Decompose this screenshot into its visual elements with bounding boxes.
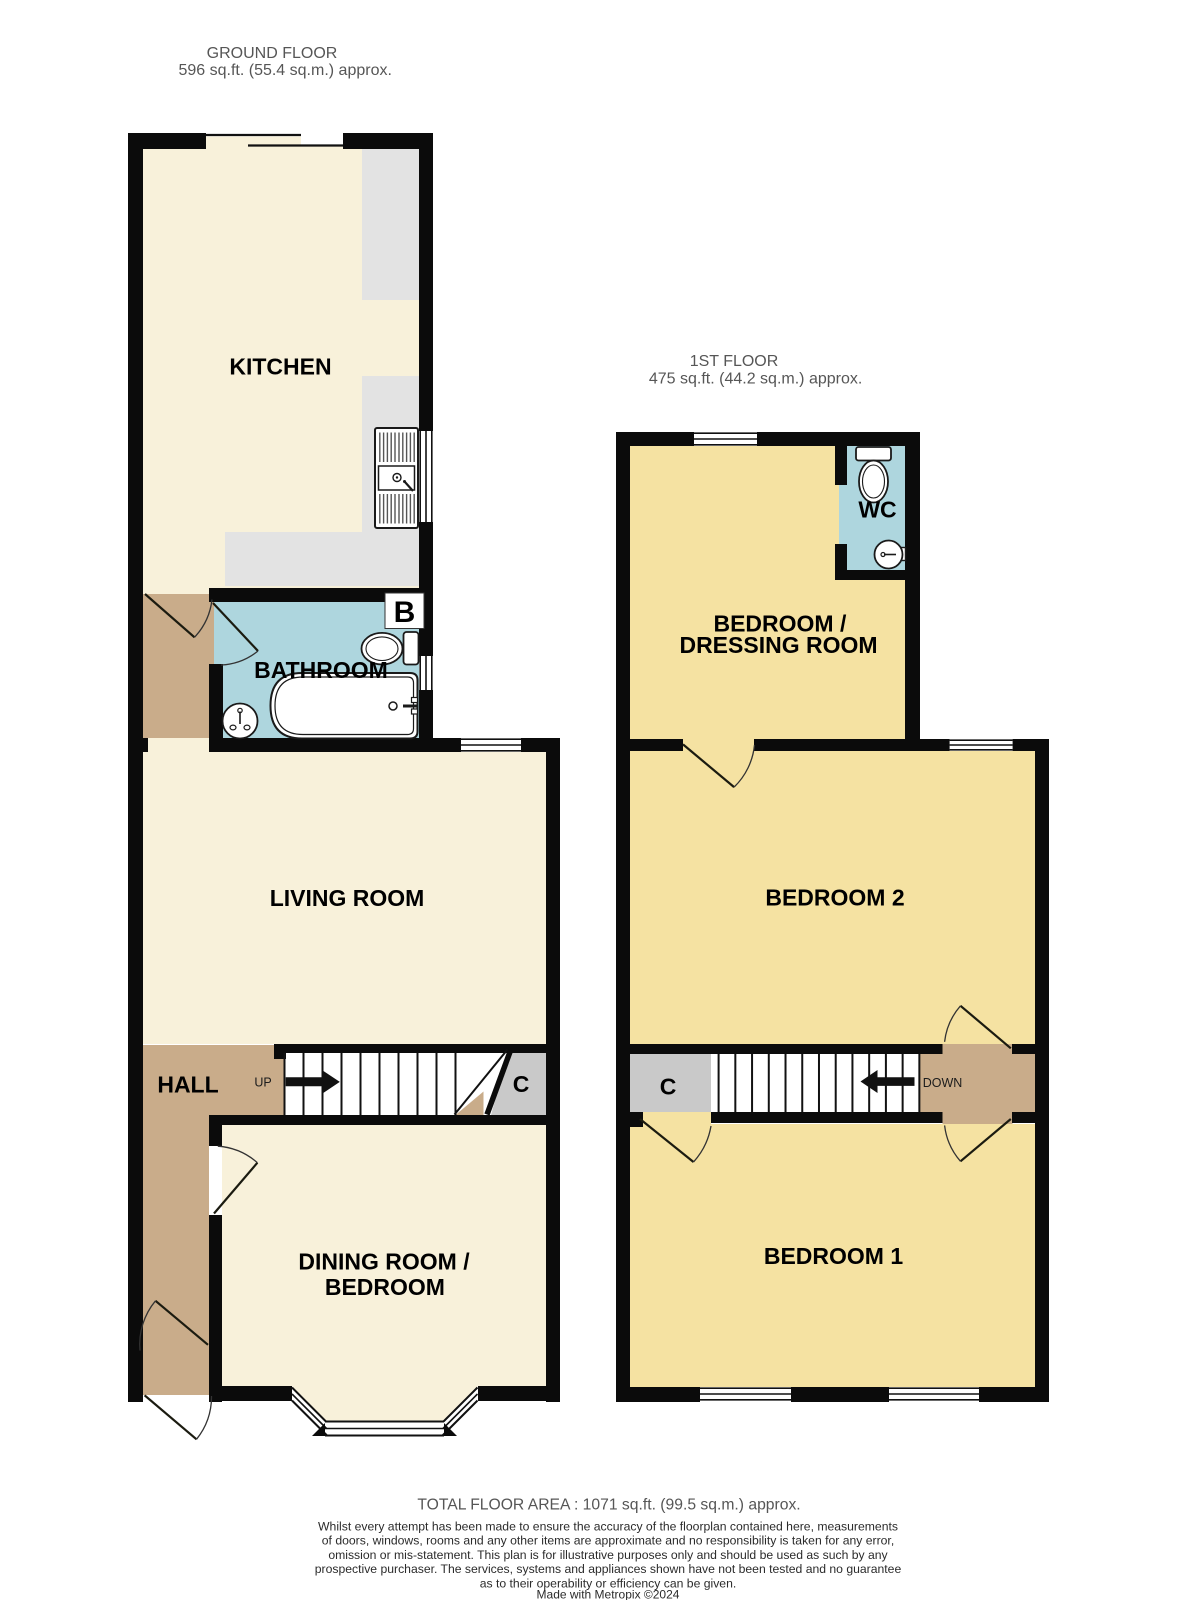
svg-text:DINING ROOM /: DINING ROOM /: [298, 1249, 470, 1275]
svg-text:TOTAL FLOOR AREA : 1071 sq.ft.: TOTAL FLOOR AREA : 1071 sq.ft. (99.5 sq.…: [417, 1497, 800, 1514]
svg-text:omission or mis-statement. Thi: omission or mis-statement. This plan is …: [328, 1548, 888, 1562]
svg-text:UP: UP: [254, 1075, 271, 1089]
svg-text:GROUND FLOOR: GROUND FLOOR: [207, 45, 338, 62]
svg-text:DOWN: DOWN: [923, 1076, 963, 1090]
svg-text:C: C: [513, 1071, 530, 1097]
svg-text:BEDROOM: BEDROOM: [325, 1274, 445, 1300]
svg-text:of doors, windows, rooms and a: of doors, windows, rooms and any other i…: [322, 1534, 894, 1548]
svg-text:B: B: [394, 596, 416, 629]
svg-text:BATHROOM: BATHROOM: [254, 657, 388, 683]
svg-text:C: C: [660, 1074, 677, 1100]
svg-text:LIVING ROOM: LIVING ROOM: [270, 885, 425, 911]
svg-text:BEDROOM 2: BEDROOM 2: [765, 885, 904, 911]
svg-text:Whilst every attempt has been: Whilst every attempt has been made to en…: [318, 1519, 898, 1533]
svg-text:475 sq.ft. (44.2 sq.m.) approx: 475 sq.ft. (44.2 sq.m.) approx.: [649, 371, 862, 388]
svg-text:1ST FLOOR: 1ST FLOOR: [690, 353, 779, 370]
svg-text:Made with Metropix ©2024: Made with Metropix ©2024: [537, 1587, 680, 1600]
svg-text:BEDROOM 1: BEDROOM 1: [764, 1243, 904, 1269]
svg-text:596 sq.ft. (55.4 sq.m.) approx: 596 sq.ft. (55.4 sq.m.) approx.: [178, 62, 391, 79]
svg-text:DRESSING ROOM: DRESSING ROOM: [679, 632, 877, 658]
svg-text:HALL: HALL: [157, 1072, 218, 1098]
svg-text:WC: WC: [858, 497, 896, 523]
svg-text:prospective purchaser. The ser: prospective purchaser. The services, sys…: [315, 1562, 902, 1576]
svg-text:KITCHEN: KITCHEN: [229, 354, 331, 380]
